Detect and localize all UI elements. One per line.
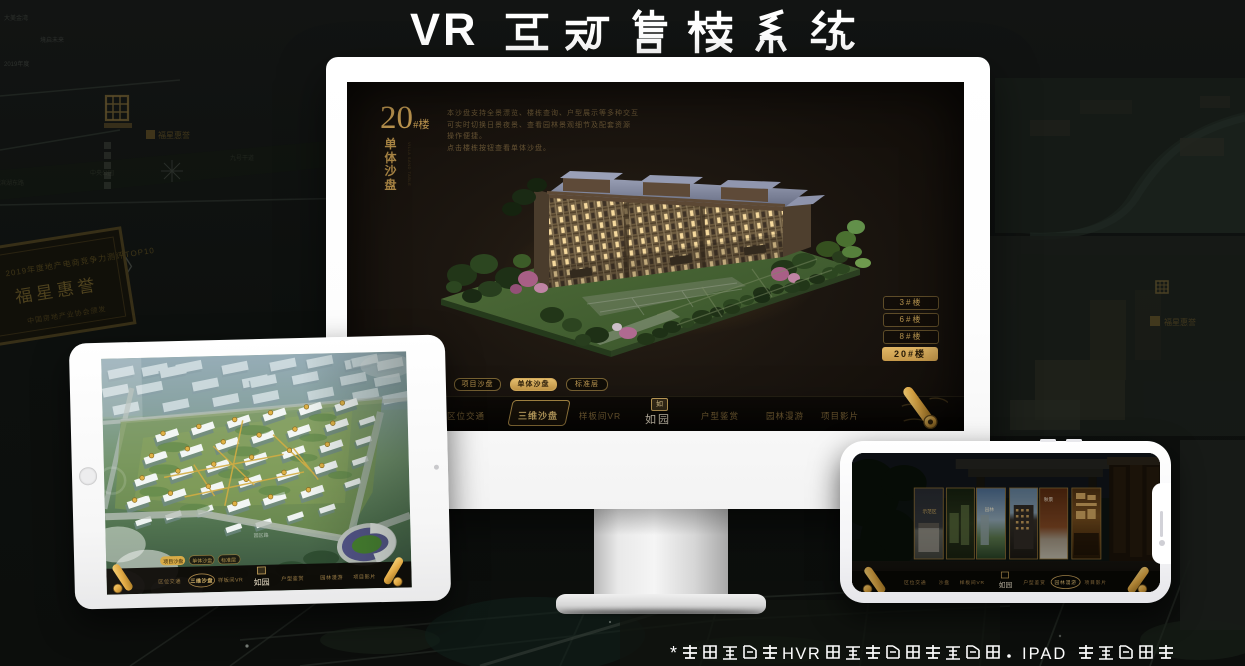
svg-text:福星惠誉: 福星惠誉 xyxy=(158,130,190,140)
svg-text:*: * xyxy=(670,643,677,663)
svg-text:大美金湾: 大美金湾 xyxy=(4,14,28,22)
svg-text:九号干道: 九号干道 xyxy=(230,154,254,162)
svg-text:2019年度: 2019年度 xyxy=(4,60,29,68)
svg-text:园区路: 园区路 xyxy=(253,532,268,539)
svg-text:境启未来: 境启未来 xyxy=(40,36,64,44)
svg-text:HVR: HVR xyxy=(782,645,821,663)
svg-text:标准层: 标准层 xyxy=(221,557,236,564)
svg-text:福星惠誉: 福星惠誉 xyxy=(1164,317,1196,327)
svg-text:如园: 如园 xyxy=(254,577,270,587)
svg-text:滨湖东路: 滨湖东路 xyxy=(0,179,24,187)
svg-text:单体沙盘: 单体沙盘 xyxy=(192,557,212,564)
svg-text:IPAD: IPAD xyxy=(1022,645,1067,663)
svg-text:项目沙盘: 项目沙盘 xyxy=(163,558,183,565)
svg-text:VR: VR xyxy=(410,7,479,55)
